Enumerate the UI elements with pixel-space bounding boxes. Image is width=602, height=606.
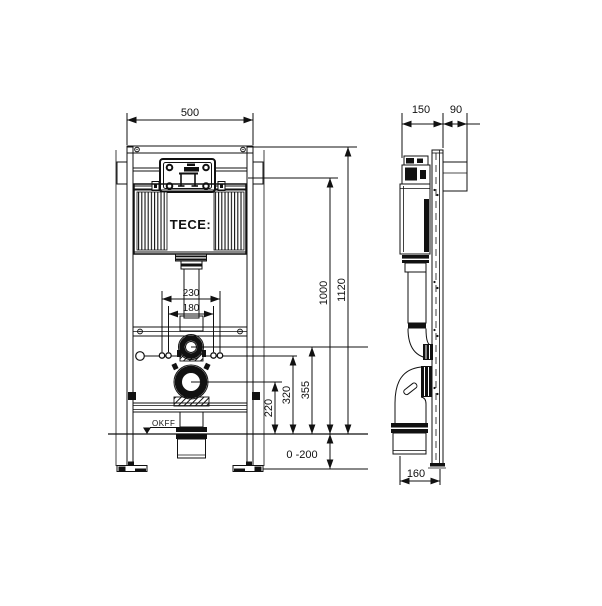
svg-text:0 -200: 0 -200 xyxy=(286,449,317,461)
svg-text:500: 500 xyxy=(181,107,199,119)
tece-logo: TECE: xyxy=(170,217,212,232)
svg-text:1000: 1000 xyxy=(318,281,330,305)
cistern-ribs-left xyxy=(137,192,167,250)
svg-text:355: 355 xyxy=(300,381,312,399)
water-supply-connection xyxy=(136,352,145,361)
rail-clamp-left xyxy=(128,392,136,400)
flush-actuator xyxy=(160,159,215,192)
svg-text:150: 150 xyxy=(412,104,430,116)
okff-label: OKFF xyxy=(152,419,175,428)
actuator-mechanism xyxy=(184,167,199,172)
wc-module-installation-drawing: TECE: xyxy=(0,0,602,606)
drain-socket-side xyxy=(421,366,432,397)
wc-bolt xyxy=(159,353,164,358)
rail-clamp-right xyxy=(252,392,260,400)
rail-foot-side xyxy=(430,463,445,467)
svg-text:90: 90 xyxy=(450,104,462,116)
wc-bolt xyxy=(211,353,216,358)
svg-text:320: 320 xyxy=(281,386,293,404)
svg-text:160: 160 xyxy=(407,468,425,480)
cistern-ribs-right xyxy=(214,192,244,250)
svg-text:220: 220 xyxy=(263,399,275,417)
svg-text:180: 180 xyxy=(183,303,200,314)
drain-pipe-front xyxy=(176,412,207,458)
wc-bolt xyxy=(166,353,171,358)
technical-drawing-page: TECE: xyxy=(0,0,602,606)
wc-bolt xyxy=(217,353,222,358)
cistern-seal-strip xyxy=(424,199,429,252)
svg-text:230: 230 xyxy=(183,288,200,299)
background xyxy=(0,0,602,606)
svg-text:1120: 1120 xyxy=(336,278,348,302)
